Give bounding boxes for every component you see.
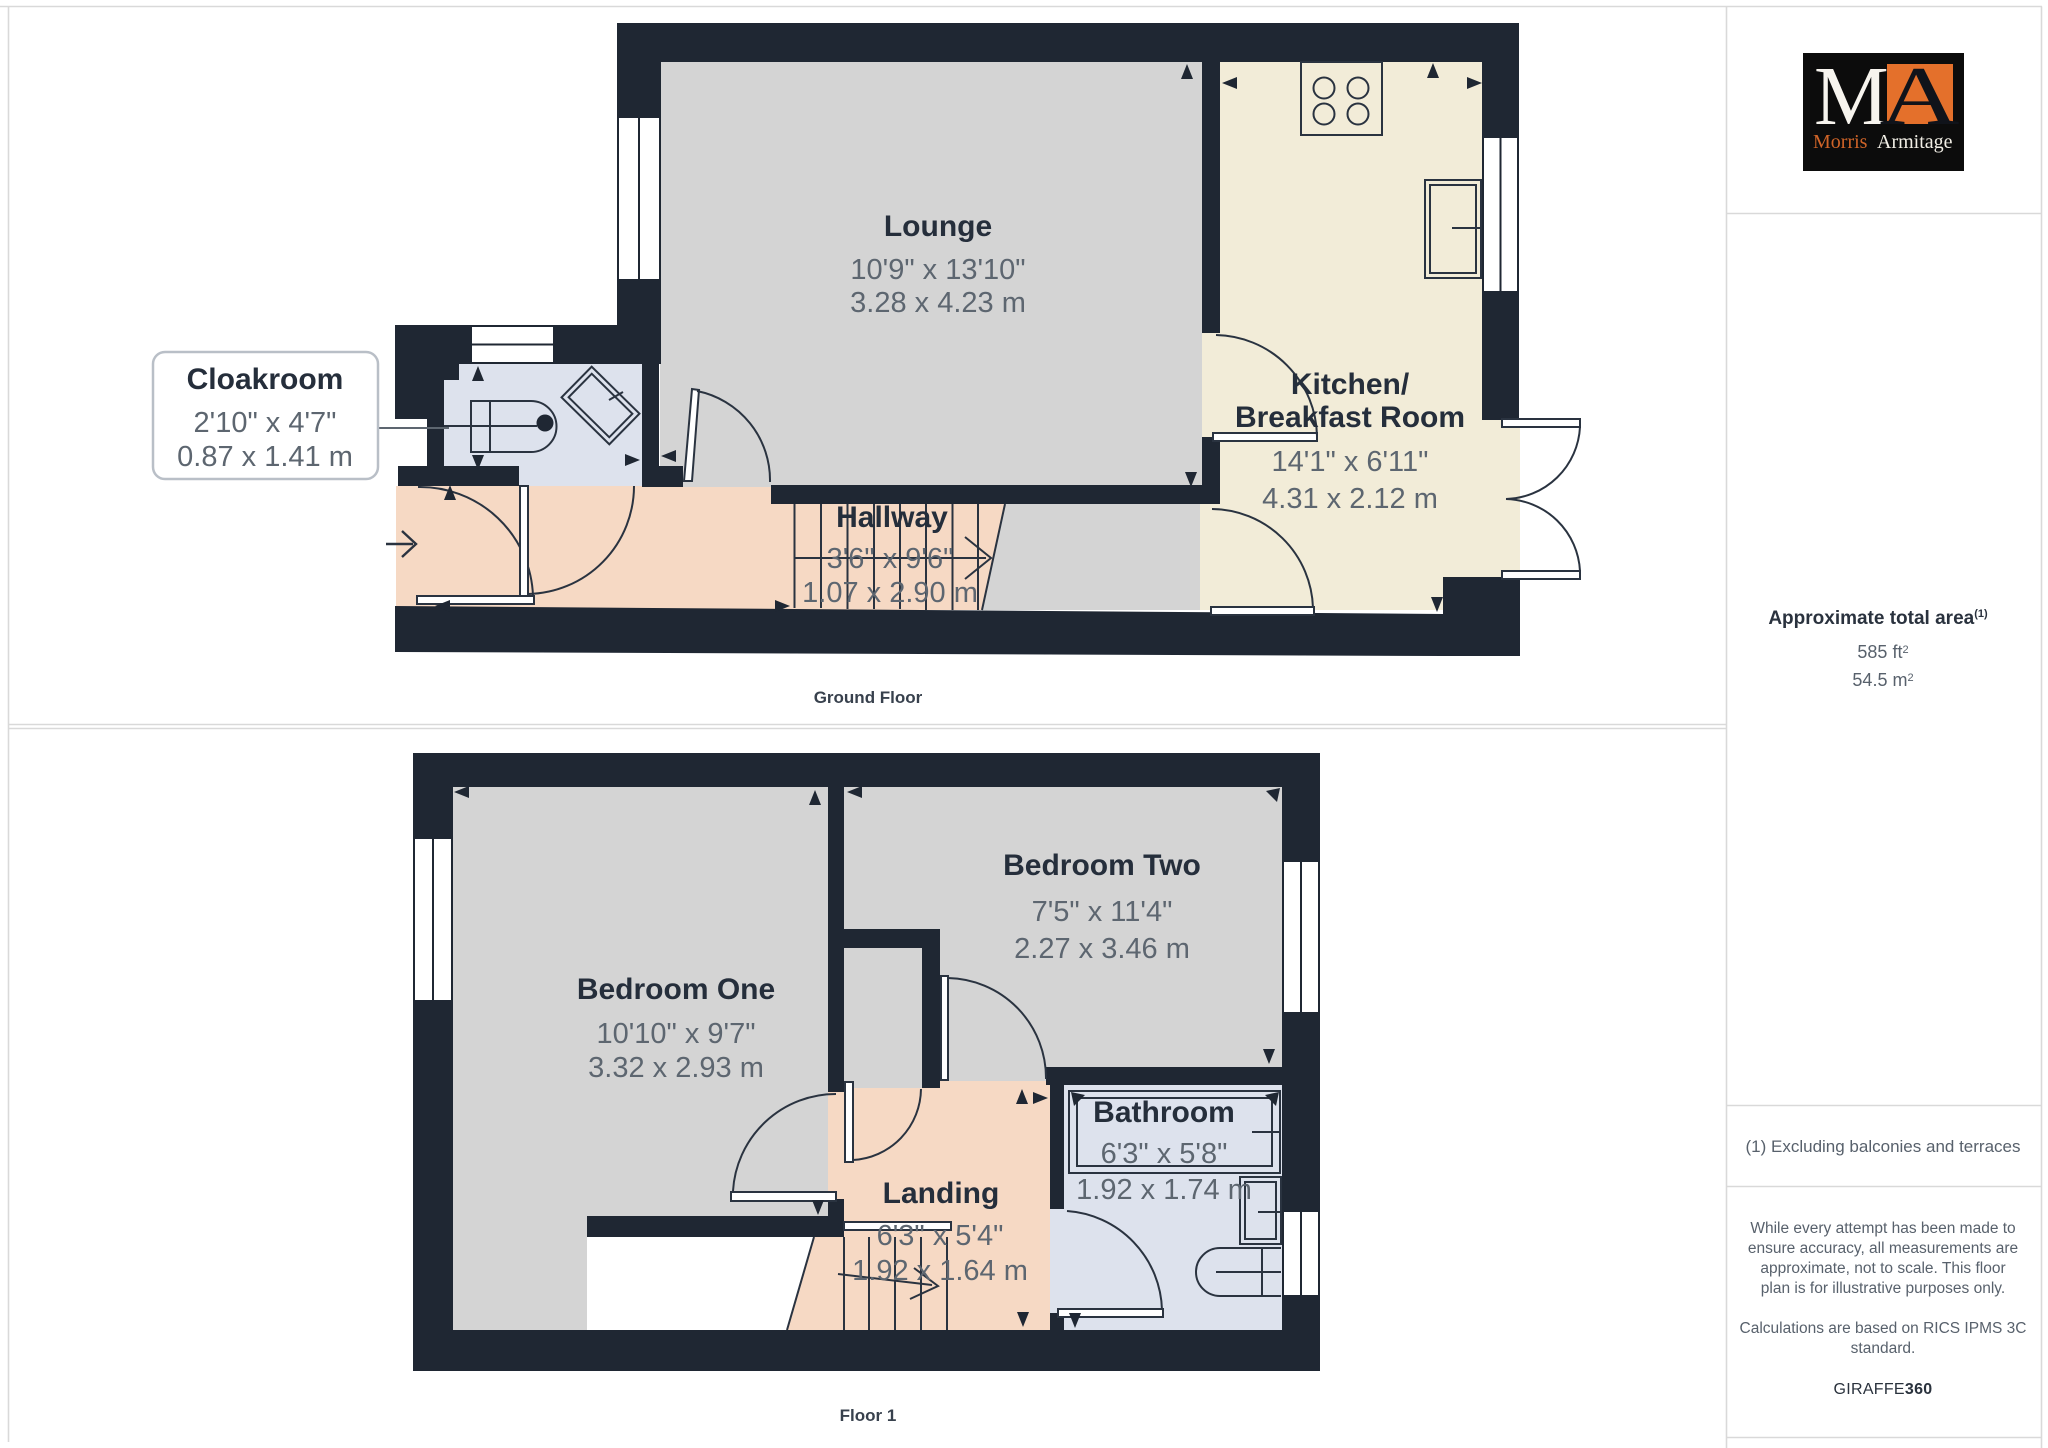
svg-text:585 ft2: 585 ft2 <box>1857 642 1908 662</box>
svg-text:ensure accuracy, all measureme: ensure accuracy, all measurements are <box>1748 1240 2018 1257</box>
svg-text:(1) Excluding balconies and te: (1) Excluding balconies and terraces <box>1746 1137 2021 1156</box>
svg-text:1.92 x 1.74 m: 1.92 x 1.74 m <box>1076 1174 1252 1206</box>
svg-text:Armitage: Armitage <box>1877 131 1953 153</box>
svg-text:A: A <box>1879 50 1959 143</box>
svg-text:2'10" x 4'7": 2'10" x 4'7" <box>194 407 337 439</box>
svg-text:standard.: standard. <box>1851 1340 1916 1357</box>
svg-text:6'3" x 5'4": 6'3" x 5'4" <box>877 1220 1004 1252</box>
svg-text:Bedroom Two: Bedroom Two <box>1003 849 1201 882</box>
svg-text:3.28 x 4.23 m: 3.28 x 4.23 m <box>850 287 1026 319</box>
svg-text:Morris: Morris <box>1813 131 1868 153</box>
svg-text:Lounge: Lounge <box>884 210 992 243</box>
svg-text:1.92 x 1.64 m: 1.92 x 1.64 m <box>852 1255 1028 1287</box>
svg-text:Breakfast Room: Breakfast Room <box>1235 401 1465 434</box>
svg-text:Approximate total area(1): Approximate total area(1) <box>1768 608 1988 629</box>
svg-text:10'9" x 13'10": 10'9" x 13'10" <box>850 254 1025 286</box>
svg-text:Bedroom One: Bedroom One <box>577 973 775 1006</box>
svg-text:M: M <box>1814 50 1889 143</box>
svg-text:6'3" x 5'8": 6'3" x 5'8" <box>1101 1138 1228 1170</box>
svg-text:Cloakroom: Cloakroom <box>187 363 344 396</box>
svg-text:Ground Floor: Ground Floor <box>814 688 923 707</box>
svg-text:2.27 x 3.46 m: 2.27 x 3.46 m <box>1014 933 1190 965</box>
svg-text:0.87 x 1.41 m: 0.87 x 1.41 m <box>177 441 353 473</box>
svg-text:Kitchen/: Kitchen/ <box>1291 368 1410 401</box>
svg-text:Landing: Landing <box>883 1177 1000 1210</box>
svg-text:Bathroom: Bathroom <box>1093 1096 1235 1129</box>
svg-text:Hallway: Hallway <box>836 501 948 534</box>
svg-text:GIRAFFE360: GIRAFFE360 <box>1833 1381 1932 1398</box>
svg-text:54.5 m2: 54.5 m2 <box>1852 670 1913 690</box>
svg-text:10'10" x 9'7": 10'10" x 9'7" <box>596 1018 755 1050</box>
svg-text:approximate, not to scale. Thi: approximate, not to scale. This floor <box>1760 1260 2005 1277</box>
svg-text:7'5" x 11'4": 7'5" x 11'4" <box>1032 896 1173 928</box>
svg-text:Calculations are based on RICS: Calculations are based on RICS IPMS 3C <box>1740 1320 2027 1337</box>
svg-text:3.32 x 2.93 m: 3.32 x 2.93 m <box>588 1052 764 1084</box>
svg-text:14'1" x 6'11": 14'1" x 6'11" <box>1272 446 1429 478</box>
svg-text:plan is for illustrative purpo: plan is for illustrative purposes only. <box>1761 1280 2005 1297</box>
svg-text:3'6" x 9'6": 3'6" x 9'6" <box>827 543 954 575</box>
svg-text:While every attempt has been m: While every attempt has been made to <box>1750 1220 2015 1237</box>
svg-text:4.31 x 2.12 m: 4.31 x 2.12 m <box>1262 483 1438 515</box>
svg-text:Floor 1: Floor 1 <box>840 1406 897 1425</box>
svg-text:1.07 x 2.90 m: 1.07 x 2.90 m <box>802 577 978 609</box>
